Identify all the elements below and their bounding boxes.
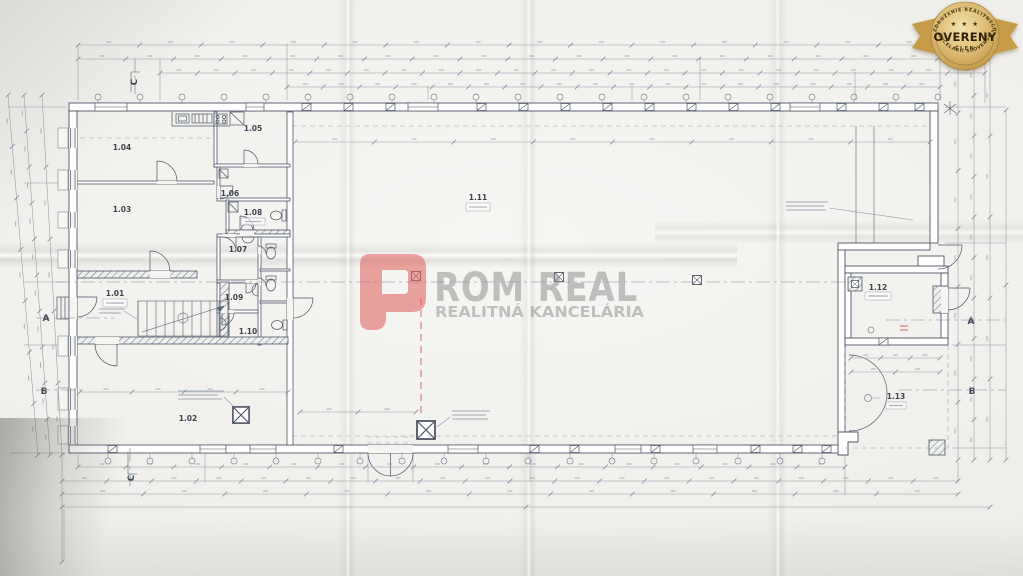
room-label-1-06: 1.06 (221, 189, 240, 198)
room-label-1-11: 1.11 (469, 193, 488, 202)
section-marker-b-right: B (969, 387, 976, 397)
section-marker-a-left: A (43, 314, 50, 324)
section-marker-b-left: B (41, 387, 48, 397)
room-label-1-01: 1.01 (106, 289, 125, 298)
section-marker-c-top: C (130, 78, 140, 85)
room-label-1-07: 1.07 (229, 245, 248, 254)
wall-openings (69, 128, 948, 453)
floor-plan-drawing: 1.01 1.02 1.03 1.04 1.05 1.06 1.07 1.08 … (0, 0, 1023, 576)
room-112-walls (845, 256, 948, 345)
dimension-decoration (98, 100, 938, 458)
room-label-1-08: 1.08 (244, 208, 263, 217)
room-label-1-04: 1.04 (113, 143, 132, 152)
badge-stars: ★ ★ ★ (950, 20, 979, 28)
dimension-decoration (138, 301, 228, 336)
exterior-walls (69, 103, 938, 455)
kitchen-fixtures (172, 112, 244, 178)
dimension-decoration (95, 94, 941, 464)
room-label-1-09: 1.09 (225, 293, 244, 302)
room-label-1-12: 1.12 (869, 283, 888, 292)
room-label-1-13: 1.13 (887, 392, 906, 401)
dimension-decoration (8, 45, 1006, 562)
verified-badge: ZDRUŽENIE REALITNÝCH ★ ★ ★ OVERENÝ ČLEN … (906, 0, 1023, 90)
room-label-1-10: 1.10 (239, 327, 258, 336)
scanned-floor-plan-photo: 1.01 1.02 1.03 1.04 1.05 1.06 1.07 1.08 … (0, 0, 1023, 576)
room-label-1-03: 1.03 (113, 205, 132, 214)
room-label-1-02: 1.02 (179, 414, 198, 423)
room-label-1-05: 1.05 (244, 124, 263, 133)
door-swings (77, 150, 970, 476)
dimension-extension-lines (8, 44, 1006, 560)
